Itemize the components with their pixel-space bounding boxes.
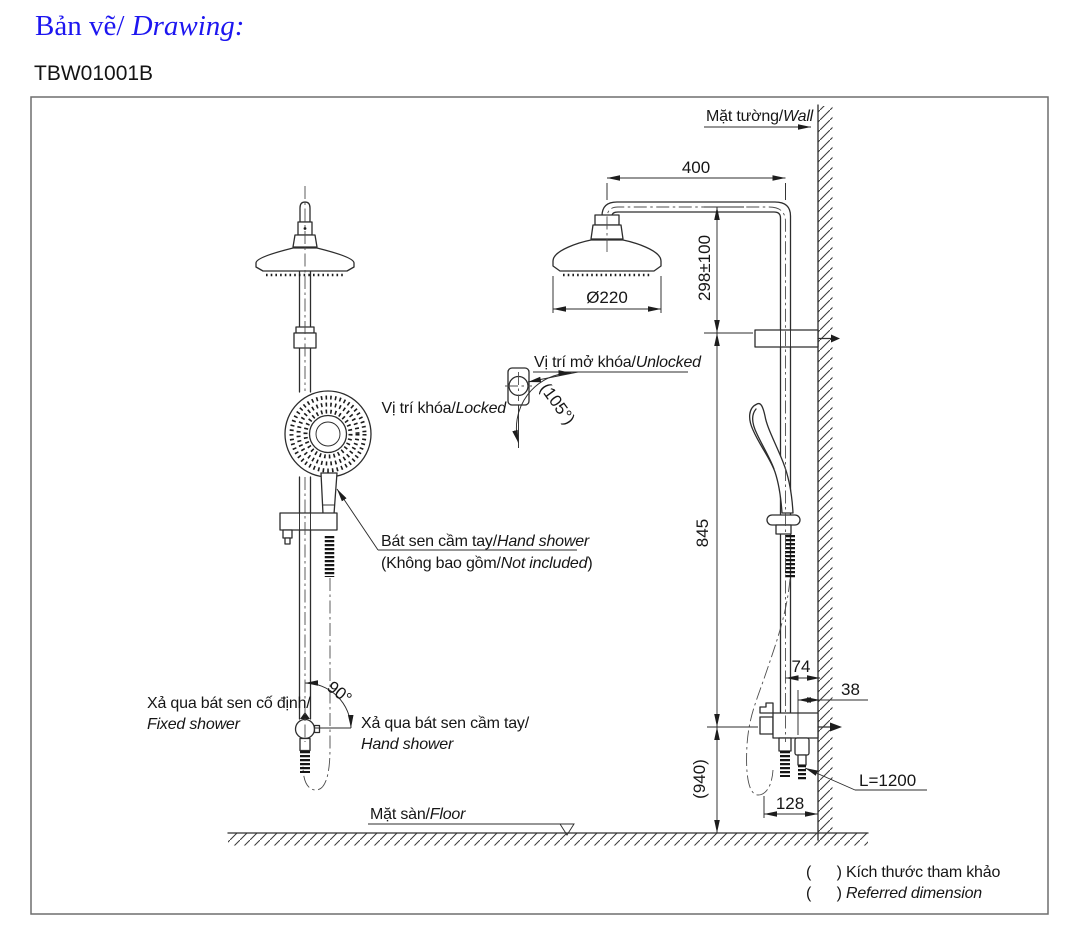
dim-valve-width: 128 [776,794,804,813]
dim-head-offset: 298±100 [695,235,714,301]
reference-note-en: ( ) Referred dimension [806,885,982,902]
product-code: TBW01001B [34,62,153,86]
svg-text:Bát sen cầm tay/Hand shower: Bát sen cầm tay/Hand shower [381,533,590,550]
hand-outlet-label-vi: Xả qua bát sen cầm tay/ [361,715,530,732]
wall-label: Mặt tường/Wall [706,108,814,125]
unlocked-label: Vị trí mở khóa/Unlocked [534,354,702,371]
dim-wall-to-holder: 38 [841,680,860,699]
dim-head-diameter: Ø220 [586,288,628,307]
locked-label: Vị trí khóa/Locked [382,400,508,417]
drawing-border [31,97,1048,914]
hand-outlet-label-en: Hand shower [361,736,454,753]
dim-valve-height: (940) [690,759,709,799]
page-title-vi: Bản vẽ/ [35,10,124,42]
fixed-outlet-label-en: Fixed shower [147,716,241,733]
page-title: Bản vẽ/ Drawing: [35,10,244,43]
fixed-outlet-label-vi: Xả qua bát sen cố định/ [147,695,311,712]
drawing-page: Bản vẽ/ Drawing: TBW01001B Mặt tường/Wal… [0,0,1078,928]
technical-drawing: Mặt tường/Wall Mặt sàn/Floor [0,95,1078,928]
dim-arm-reach: 400 [682,158,710,177]
hand-shower-handle [321,473,337,514]
page-title-en: Drawing: [132,10,245,42]
dim-slide-bar: 845 [693,519,712,547]
dim-wall-to-pipe: 74 [792,657,811,676]
floor-label: Mặt sàn/Floor [370,806,466,823]
dim-hose-length: L=1200 [859,771,916,790]
svg-text:(Không bao gồm/Not included): (Không bao gồm/Not included) [381,555,592,572]
reference-note-vi: ( ) Kích thước tham khảo [806,864,1000,881]
